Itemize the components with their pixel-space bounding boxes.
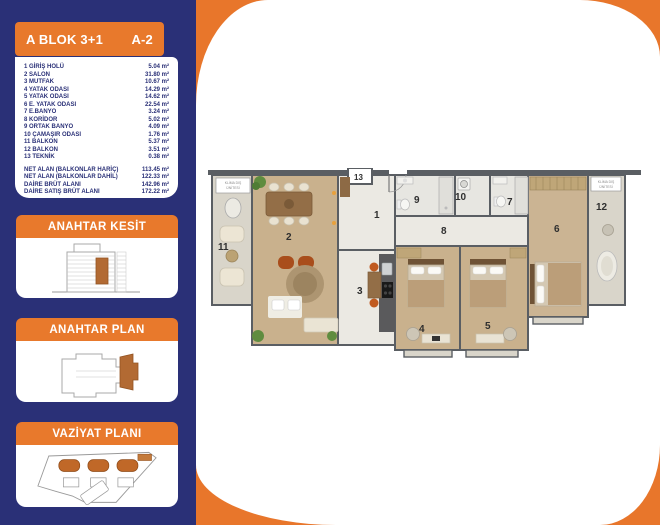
section-anahtar-plan: ANAHTAR PLAN xyxy=(16,318,178,402)
room-row-value: 22.54 m² xyxy=(145,102,169,110)
room-row-label: 9 ORTAK BANYO xyxy=(24,124,73,132)
room-row: 13 TEKNİK0.38 m² xyxy=(24,154,169,162)
room-list: 1 GİRİŞ HOLÜ5.04 m²2 SALON31.80 m²3 MUTF… xyxy=(24,64,169,162)
building-section-drawing xyxy=(22,240,172,296)
room-row: 9 ORTAK BANYO4.09 m² xyxy=(24,124,169,132)
summary-row-value: 122.33 m² xyxy=(142,174,169,182)
room-row-label: 8 KORİDOR xyxy=(24,117,57,125)
summary-row: DAİRE BRÜT ALANI142.96 m² xyxy=(24,182,169,190)
room-row-value: 4.09 m² xyxy=(148,124,169,132)
summary-row-value: 172.22 m² xyxy=(142,189,169,197)
anahtar-kesit-title: ANAHTAR KESİT xyxy=(16,215,178,238)
room-row: 12 BALKON3.51 m² xyxy=(24,147,169,155)
summary-row-value: 113.45 m² xyxy=(142,167,169,175)
room-row: 10 ÇAMAŞIR ODASI1.76 m² xyxy=(24,132,169,140)
room-row-label: 5 YATAK ODASI xyxy=(24,94,69,102)
summary-list: NET ALAN (BALKONLAR HARİÇ)113.45 m²NET A… xyxy=(24,167,169,197)
room-row-label: 12 BALKON xyxy=(24,147,58,155)
svg-text:ÜNİTESİ: ÜNİTESİ xyxy=(599,184,612,189)
room-row: 8 KORİDOR5.02 m² xyxy=(24,117,169,125)
summary-row: NET ALAN (BALKONLAR DAHİL)122.33 m² xyxy=(24,174,169,182)
svg-text:5: 5 xyxy=(485,321,491,332)
room-row-value: 3.51 m² xyxy=(148,147,169,155)
room-row-value: 0.38 m² xyxy=(148,154,169,162)
unit-header: A BLOK 3+1 A-2 xyxy=(15,22,164,56)
room-row-label: 2 SALON xyxy=(24,72,50,80)
section-vaziyat-plani: VAZİYAT PLANI xyxy=(16,422,178,507)
room-row-label: 7 E.BANYO xyxy=(24,109,56,117)
svg-text:1: 1 xyxy=(374,210,380,221)
vaziyat-plani-body xyxy=(16,445,178,507)
balconet-under-5 xyxy=(466,350,518,357)
anahtar-kesit-body xyxy=(16,238,178,298)
svg-text:9: 9 xyxy=(414,195,420,206)
room-balcony-12 xyxy=(588,175,625,305)
svg-text:4: 4 xyxy=(419,324,425,335)
svg-text:8: 8 xyxy=(441,226,447,237)
summary-row-label: DAİRE SATIŞ BRÜT ALANI xyxy=(24,189,100,197)
summary-row-label: DAİRE BRÜT ALANI xyxy=(24,182,81,190)
room-row: 6 E. YATAK ODASI22.54 m² xyxy=(24,102,169,110)
room-row-value: 5.37 m² xyxy=(148,139,169,147)
room-row: 3 MUTFAK10.67 m² xyxy=(24,79,169,87)
sidebar: A BLOK 3+1 A-2 1 GİRİŞ HOLÜ5.04 m²2 SALO… xyxy=(0,0,196,525)
room-row-label: 1 GİRİŞ HOLÜ xyxy=(24,64,64,72)
room-row-label: 6 E. YATAK ODASI xyxy=(24,102,76,110)
room-row-label: 10 ÇAMAŞIR ODASI xyxy=(24,132,81,140)
anahtar-plan-title: ANAHTAR PLAN xyxy=(16,318,178,341)
main-panel: KLİMA DIŞ ÜNİTESİ xyxy=(196,0,660,525)
balconet-under-4 xyxy=(404,350,452,357)
svg-text:ÜNİTESİ: ÜNİTESİ xyxy=(226,185,239,190)
room-row-value: 10.67 m² xyxy=(145,79,169,87)
section-anahtar-kesit: ANAHTAR KESİT xyxy=(16,215,178,298)
svg-text:6: 6 xyxy=(554,224,560,235)
room-row: 5 YATAK ODASI14.62 m² xyxy=(24,94,169,102)
svg-text:2: 2 xyxy=(286,232,292,243)
summary-row: DAİRE SATIŞ BRÜT ALANI172.22 m² xyxy=(24,189,169,197)
room-row-value: 14.62 m² xyxy=(145,94,169,102)
svg-text:KLİMA DIŞ: KLİMA DIŞ xyxy=(598,179,615,184)
summary-row: NET ALAN (BALKONLAR HARİÇ)113.45 m² xyxy=(24,167,169,175)
svg-text:13: 13 xyxy=(354,173,363,182)
balconet-under-6 xyxy=(533,317,583,324)
svg-text:3: 3 xyxy=(357,286,363,297)
room-row: 1 GİRİŞ HOLÜ5.04 m² xyxy=(24,64,169,72)
room-row-value: 14.29 m² xyxy=(145,87,169,95)
room-row-label: 13 TEKNİK xyxy=(24,154,55,162)
area-info-box: 1 GİRİŞ HOLÜ5.04 m²2 SALON31.80 m²3 MUTF… xyxy=(15,57,178,198)
svg-text:KLİMA DIŞ: KLİMA DIŞ xyxy=(225,180,242,185)
block-title: A BLOK 3+1 xyxy=(26,32,103,47)
summary-row-label: NET ALAN (BALKONLAR HARİÇ) xyxy=(24,167,118,175)
highlighted-floors xyxy=(96,258,108,284)
svg-text:7: 7 xyxy=(507,197,513,208)
svg-text:10: 10 xyxy=(455,192,467,203)
room-row-label: 11 BALKON xyxy=(24,139,58,147)
room-row-value: 5.04 m² xyxy=(148,64,169,72)
room-row: 4 YATAK ODASI14.29 m² xyxy=(24,87,169,95)
room-row-value: 5.02 m² xyxy=(148,117,169,125)
room-row-value: 31.80 m² xyxy=(145,72,169,80)
key-plan-drawing xyxy=(22,343,172,400)
room-row: 11 BALKON5.37 m² xyxy=(24,139,169,147)
svg-text:12: 12 xyxy=(596,202,608,213)
summary-row-value: 142.96 m² xyxy=(142,182,169,190)
main-panel-card: KLİMA DIŞ ÜNİTESİ xyxy=(196,0,660,525)
vaziyat-plani-title: VAZİYAT PLANI xyxy=(16,422,178,445)
site-plan-drawing xyxy=(22,446,172,506)
room-corridor-8 xyxy=(395,216,528,246)
room-row: 2 SALON31.80 m² xyxy=(24,72,169,80)
room-row-label: 3 MUTFAK xyxy=(24,79,54,87)
laundry-10-fixtures xyxy=(458,178,470,190)
room-row-value: 1.76 m² xyxy=(148,132,169,140)
room-row-value: 3.24 m² xyxy=(148,109,169,117)
floor-plan: KLİMA DIŞ ÜNİTESİ xyxy=(208,168,645,360)
anahtar-plan-body xyxy=(16,341,178,402)
room-row: 7 E.BANYO3.24 m² xyxy=(24,109,169,117)
summary-row-label: NET ALAN (BALKONLAR DAHİL) xyxy=(24,174,118,182)
site-blocks-highlighted xyxy=(59,460,138,472)
unit-code: A-2 xyxy=(131,32,153,47)
highlighted-unit xyxy=(120,354,138,390)
svg-text:11: 11 xyxy=(218,242,229,253)
room-row-label: 4 YATAK ODASI xyxy=(24,87,69,95)
